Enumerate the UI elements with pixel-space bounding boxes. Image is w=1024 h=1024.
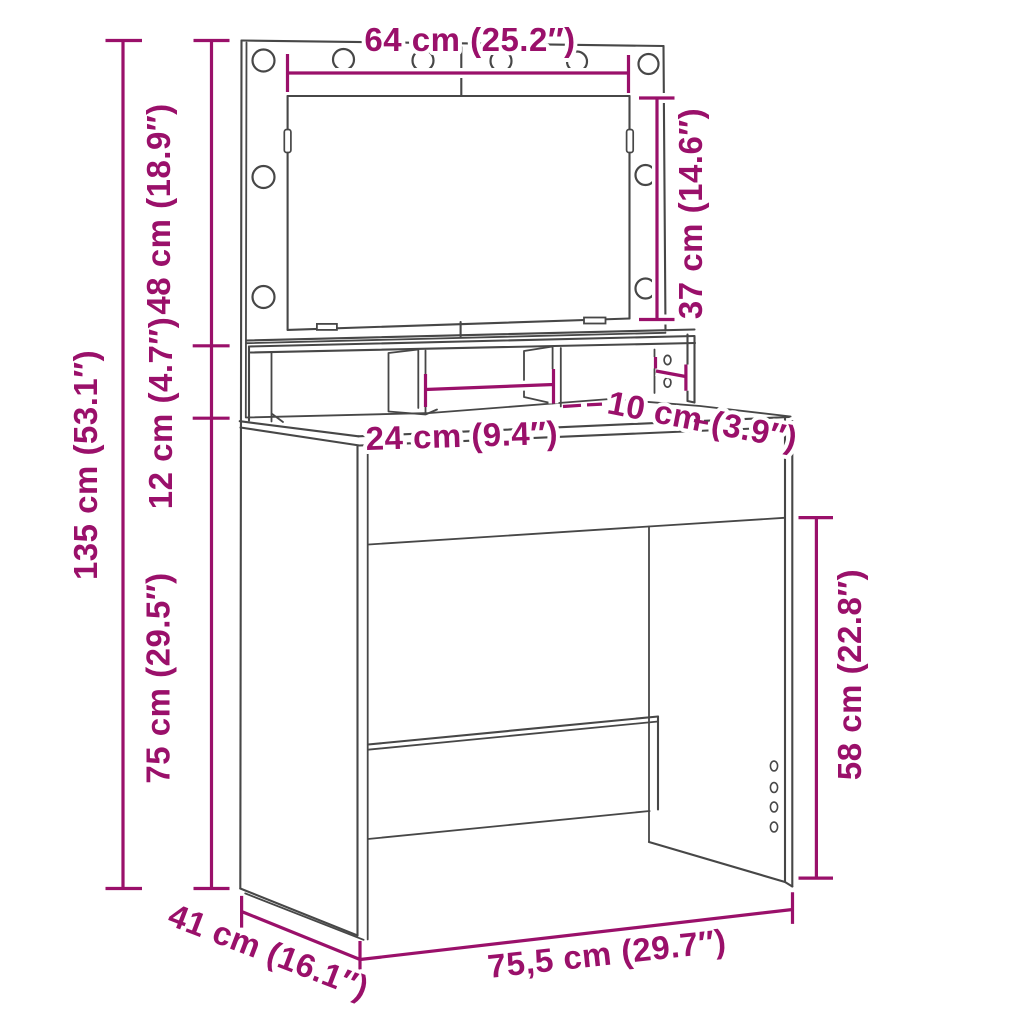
svg-text:58 cm (22.8″): 58 cm (22.8″) (831, 569, 868, 780)
svg-text:48 cm (18.9″): 48 cm (18.9″) (140, 103, 177, 314)
svg-text:12 cm (4.7″): 12 cm (4.7″) (142, 317, 179, 509)
svg-text:37 cm (14.6″): 37 cm (14.6″) (672, 108, 709, 319)
svg-text:64 cm (25.2″): 64 cm (25.2″) (364, 21, 575, 58)
svg-text:75 cm (29.5″): 75 cm (29.5″) (140, 572, 177, 783)
svg-text:135 cm (53.1″): 135 cm (53.1″) (67, 350, 104, 580)
svg-text:24 cm (9.4″): 24 cm (9.4″) (365, 414, 558, 457)
